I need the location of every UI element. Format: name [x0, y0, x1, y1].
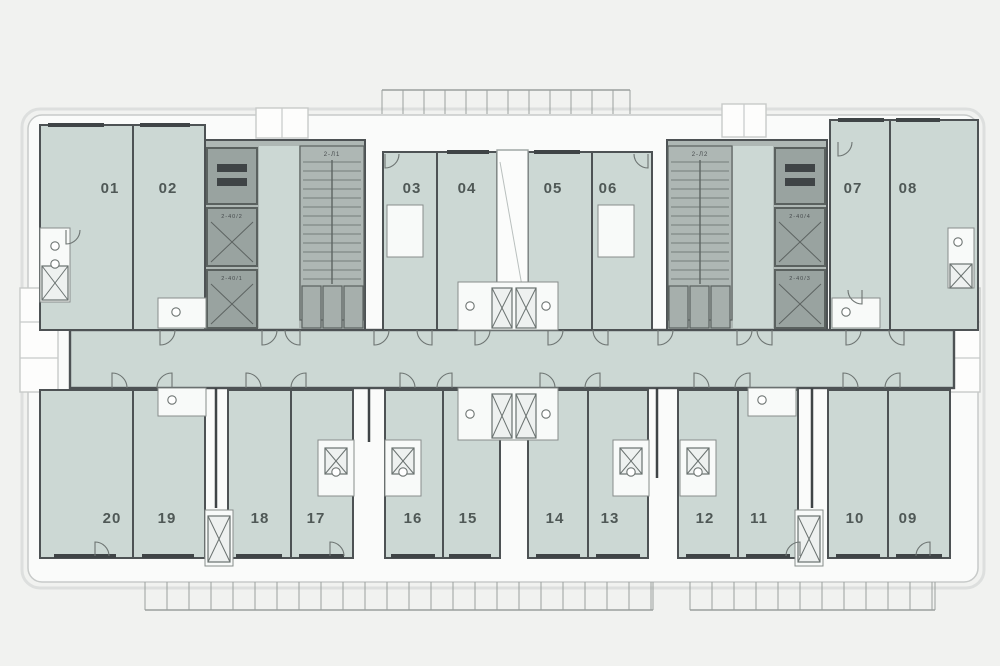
unit-label-10: 10: [846, 510, 865, 527]
fixture: [168, 396, 176, 404]
window-bar: [838, 118, 884, 122]
fixture: [842, 308, 850, 316]
stair-label: 2-Л2: [692, 152, 709, 158]
elevator-label: 2-40/2: [221, 214, 243, 220]
unit-label-11: 11: [750, 510, 768, 527]
elevator-label: 2-40/1: [221, 276, 243, 282]
service-cell: [669, 286, 688, 328]
window-bar: [836, 554, 880, 558]
bath-pod: [387, 205, 423, 257]
window-bar: [896, 118, 940, 122]
unit-label-06: 06: [599, 180, 618, 197]
unit-label-20: 20: [103, 510, 122, 527]
window-bar: [391, 554, 435, 558]
unit-label-19: 19: [158, 510, 177, 527]
unit-label-01: 01: [101, 180, 120, 197]
unit-label-09: 09: [899, 510, 918, 527]
unit-room-10: [828, 390, 888, 558]
machine-room: [775, 148, 825, 204]
floor-plan-page: 2-Л12-40/22-40/12-Л22-40/42-40/301020304…: [0, 0, 1000, 666]
unit-label-13: 13: [601, 510, 620, 527]
unit-label-15: 15: [459, 510, 478, 527]
fixture: [758, 396, 766, 404]
unit-room-18: [228, 390, 291, 558]
unit-label-02: 02: [159, 180, 178, 197]
unit-label-18: 18: [251, 510, 270, 527]
unit-label-14: 14: [546, 510, 565, 527]
window-bar: [686, 554, 730, 558]
fixture: [332, 468, 340, 476]
service-cell: [690, 286, 709, 328]
machine-room: [207, 148, 257, 204]
fixture: [51, 242, 59, 250]
bath-pod: [748, 388, 796, 416]
floor-plan-svg: 2-Л12-40/22-40/12-Л22-40/42-40/301020304…: [0, 0, 1000, 666]
stair-label: 2-Л1: [324, 152, 341, 158]
unit-room-20: [40, 390, 133, 558]
window-bar: [299, 554, 344, 558]
unit-label-16: 16: [404, 510, 423, 527]
service-cell: [344, 286, 363, 328]
fixture: [542, 410, 550, 418]
fixture: [172, 308, 180, 316]
fixture: [399, 468, 407, 476]
unit-label-04: 04: [458, 180, 477, 197]
elevator-label: 2-40/3: [789, 276, 811, 282]
service-cell: [711, 286, 730, 328]
service-cell: [323, 286, 342, 328]
window-bar: [596, 554, 640, 558]
window-bar: [447, 150, 489, 154]
equipment-block: [217, 164, 247, 172]
fixture: [954, 238, 962, 246]
core-lobby: [733, 146, 773, 328]
window-bar: [54, 554, 116, 558]
unit-label-07: 07: [844, 180, 863, 197]
service-cell: [302, 286, 321, 328]
fixture: [51, 260, 59, 268]
window-bar: [534, 150, 580, 154]
unit-label-05: 05: [544, 180, 563, 197]
window-bar: [746, 554, 790, 558]
equipment-block: [785, 178, 815, 186]
bath-pod: [598, 205, 634, 257]
unit-label-17: 17: [307, 510, 326, 527]
window-bar: [140, 123, 190, 127]
core-lobby: [259, 146, 299, 328]
bath-pod: [158, 388, 206, 416]
bath-pod: [158, 298, 206, 328]
equipment-block: [785, 164, 815, 172]
fixture: [694, 468, 702, 476]
fixture: [466, 410, 474, 418]
unit-room-09: [888, 390, 950, 558]
window-bar: [536, 554, 580, 558]
window-bar: [896, 554, 942, 558]
fixture: [466, 302, 474, 310]
window-bar: [449, 554, 491, 558]
fixture: [542, 302, 550, 310]
fixture: [627, 468, 635, 476]
equipment-block: [217, 178, 247, 186]
unit-label-12: 12: [696, 510, 715, 527]
corridor: [70, 330, 954, 388]
elevator-label: 2-40/4: [789, 214, 811, 220]
unit-label-08: 08: [899, 180, 918, 197]
unit-label-03: 03: [403, 180, 422, 197]
window-bar: [236, 554, 282, 558]
window-bar: [142, 554, 194, 558]
unit-room-08: [890, 120, 978, 330]
window-bar: [48, 123, 104, 127]
